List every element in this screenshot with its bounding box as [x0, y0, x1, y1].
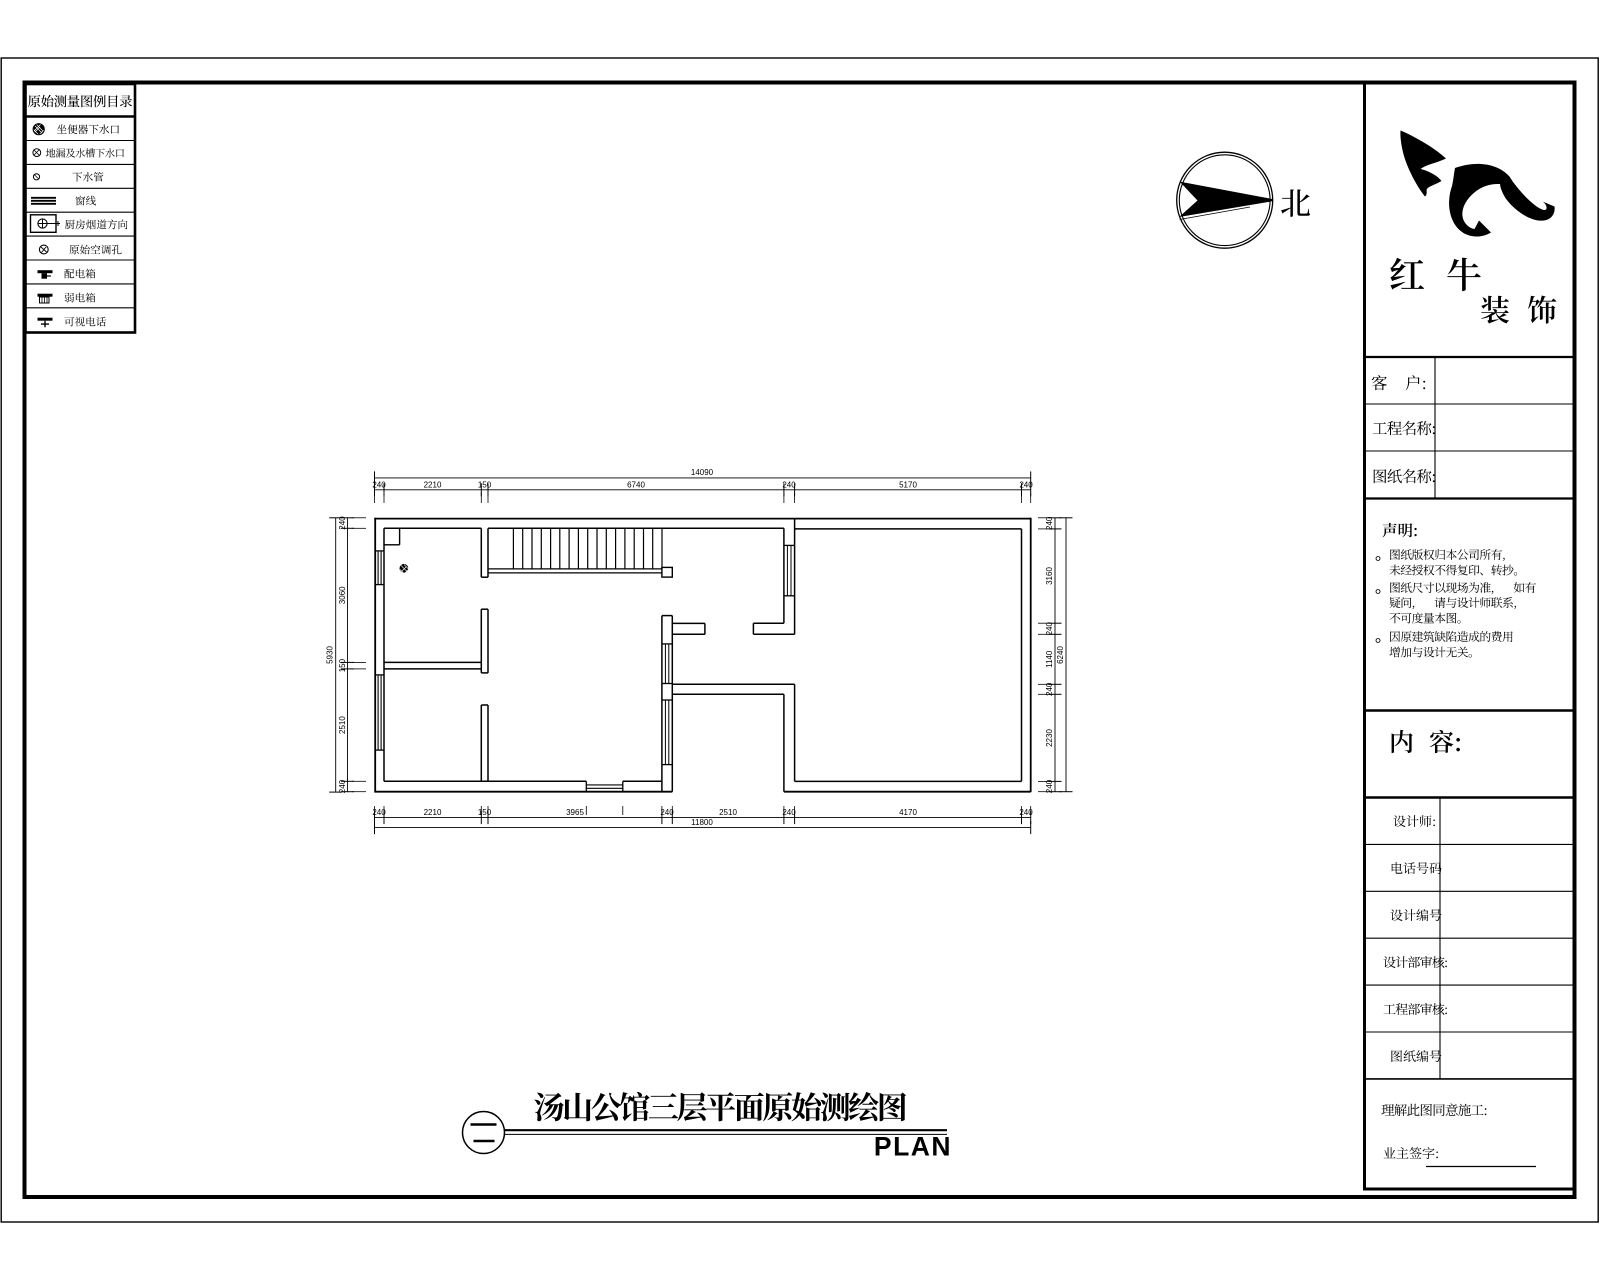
- svg-text:2510: 2510: [338, 716, 347, 734]
- svg-text:14090: 14090: [691, 468, 714, 477]
- svg-text:240: 240: [1019, 808, 1033, 817]
- svg-text:150: 150: [338, 658, 347, 672]
- svg-text:2210: 2210: [424, 808, 442, 817]
- svg-text:240: 240: [1045, 779, 1054, 793]
- svg-text:150: 150: [478, 480, 492, 489]
- svg-text:6740: 6740: [627, 480, 645, 489]
- svg-text:240: 240: [782, 808, 796, 817]
- svg-text:3060: 3060: [338, 586, 347, 604]
- svg-text:2210: 2210: [424, 480, 442, 489]
- svg-text:240: 240: [660, 808, 674, 817]
- svg-text:2510: 2510: [719, 808, 737, 817]
- svg-text:240: 240: [372, 808, 386, 817]
- svg-text:2230: 2230: [1045, 729, 1054, 747]
- svg-text:5170: 5170: [899, 480, 917, 489]
- svg-text:PLAN: PLAN: [874, 1132, 952, 1162]
- svg-text:6240: 6240: [1056, 646, 1065, 664]
- svg-text:3160: 3160: [1045, 567, 1054, 585]
- svg-text:240: 240: [338, 516, 347, 530]
- svg-text:240: 240: [1019, 480, 1033, 489]
- svg-text:5930: 5930: [326, 646, 335, 664]
- svg-text:11800: 11800: [691, 818, 713, 827]
- svg-text:240: 240: [1045, 516, 1054, 530]
- svg-text:150: 150: [478, 808, 492, 817]
- svg-text:4170: 4170: [899, 808, 917, 817]
- svg-text:3965: 3965: [566, 808, 584, 817]
- svg-text:240: 240: [372, 480, 386, 489]
- svg-text:240: 240: [1045, 621, 1054, 635]
- svg-text:240: 240: [1045, 682, 1054, 696]
- svg-text:240: 240: [338, 779, 347, 793]
- svg-text:240: 240: [782, 480, 796, 489]
- svg-text:1140: 1140: [1045, 650, 1054, 668]
